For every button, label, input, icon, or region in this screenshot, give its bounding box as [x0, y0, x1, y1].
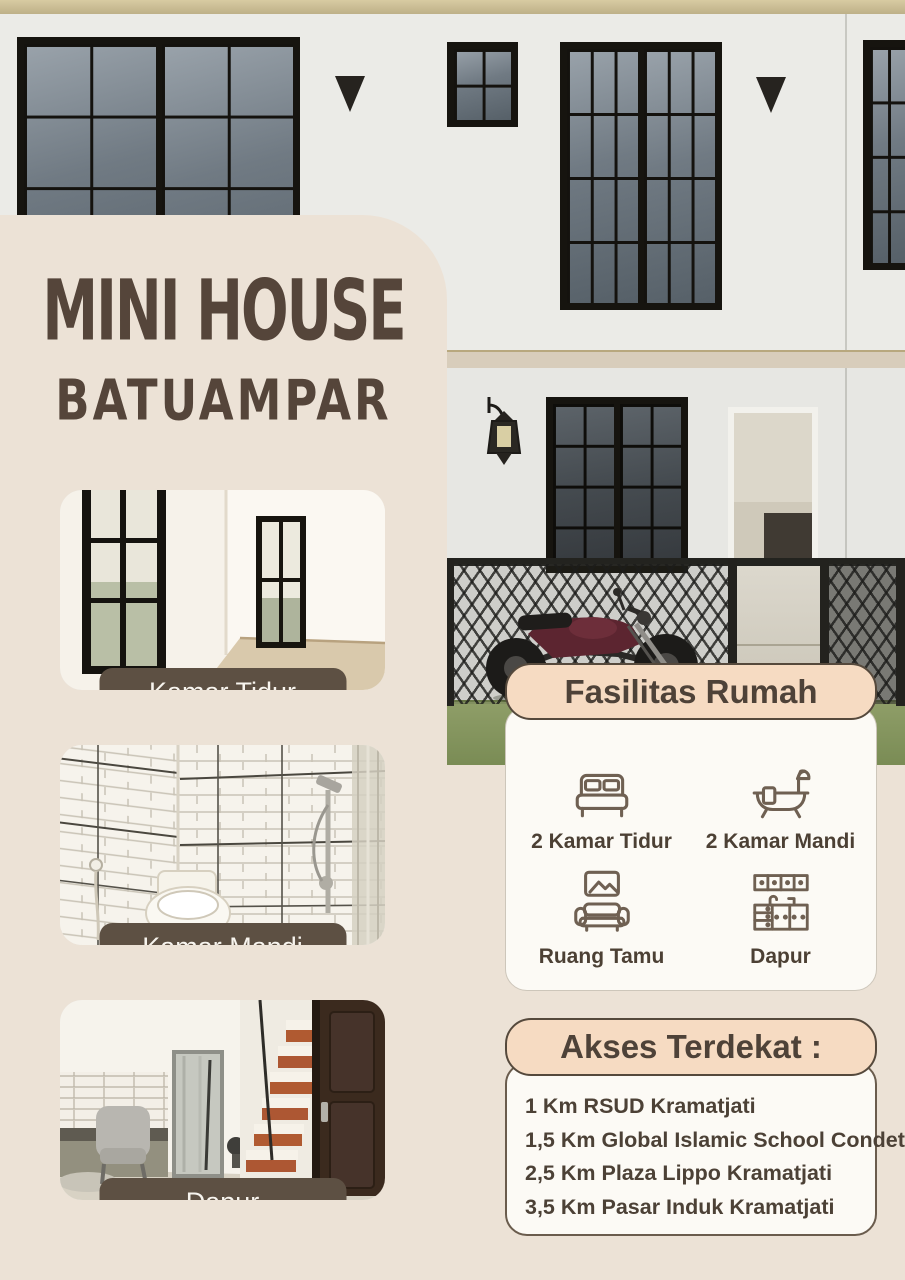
window-glass: [644, 49, 715, 303]
info-panel: MINI HOUSE BATUAMPAR: [0, 215, 447, 1280]
facility-item: 2 Kamar Tidur: [512, 753, 691, 864]
wall-seam: [845, 368, 847, 558]
window-glass: [454, 49, 511, 120]
access-item: 1,5 Km Global Islamic School Condet: [525, 1124, 861, 1158]
kitchen-photo: Dapur: [60, 1000, 385, 1200]
porch-lantern-icon: [483, 393, 525, 489]
upper-window-right-partial: [863, 40, 905, 270]
facility-item: Dapur: [691, 864, 870, 975]
access-header: Akses Terdekat :: [505, 1018, 877, 1076]
photo-label-pill: Kamar Mandi: [99, 923, 346, 945]
access-item: 1 Km RSUD Kramatjati: [525, 1090, 861, 1124]
fence-post: [896, 558, 905, 706]
bedroom-window-right: [256, 516, 306, 648]
bedroom-window-left: [82, 490, 166, 674]
poster-title: MINI HOUSE: [0, 263, 447, 361]
bed-icon: [569, 762, 635, 824]
door-glass: [553, 404, 614, 566]
facility-item: 2 Kamar Mandi: [691, 753, 870, 864]
staircase: [240, 1000, 324, 1200]
sofa-icon: [567, 869, 637, 939]
facilities-card: 2 Kamar Tidur 2 Kamar Mandi: [505, 706, 877, 991]
facility-label: 2 Kamar Mandi: [706, 830, 855, 854]
facilities-title: Fasilitas Rumah: [564, 673, 817, 711]
open-doorway: [728, 407, 818, 575]
facility-label: Ruang Tamu: [539, 945, 665, 969]
photo-label-pill: Dapur: [99, 1178, 346, 1200]
access-title: Akses Terdekat :: [560, 1028, 822, 1066]
window-glass: [567, 49, 638, 303]
bathroom-photo: Kamar Mandi: [60, 745, 385, 945]
doorway-interior: [734, 413, 812, 575]
wooden-door: [312, 1000, 385, 1200]
access-item: 3,5 Km Pasar Induk Kramatjati: [525, 1191, 861, 1225]
window-glass: [870, 47, 905, 263]
facility-item: Ruang Tamu: [512, 864, 691, 975]
upper-window-small: [447, 42, 518, 127]
access-item: 2,5 Km Plaza Lippo Kramatjati: [525, 1157, 861, 1191]
ground-french-door: [546, 397, 688, 573]
real-estate-flyer: MINI HOUSE BATUAMPAR: [0, 0, 905, 1280]
door-glass: [620, 404, 681, 566]
upper-window-center: [560, 42, 722, 310]
facility-label: 2 Kamar Tidur: [531, 830, 672, 854]
bedroom-photo: Kamar Tidur: [60, 490, 385, 690]
poster-subtitle: BATUAMPAR: [0, 367, 447, 433]
kitchen-icon: [746, 869, 816, 939]
photo-label-pill: Kamar Tidur: [99, 668, 346, 690]
facilities-header: Fasilitas Rumah: [505, 663, 877, 720]
access-card: 1 Km RSUD Kramatjati 1,5 Km Global Islam…: [505, 1062, 877, 1236]
bathtub-icon: [748, 762, 814, 824]
wall-seam: [845, 14, 847, 350]
glass-door: [174, 1052, 222, 1176]
facility-label: Dapur: [750, 945, 811, 969]
